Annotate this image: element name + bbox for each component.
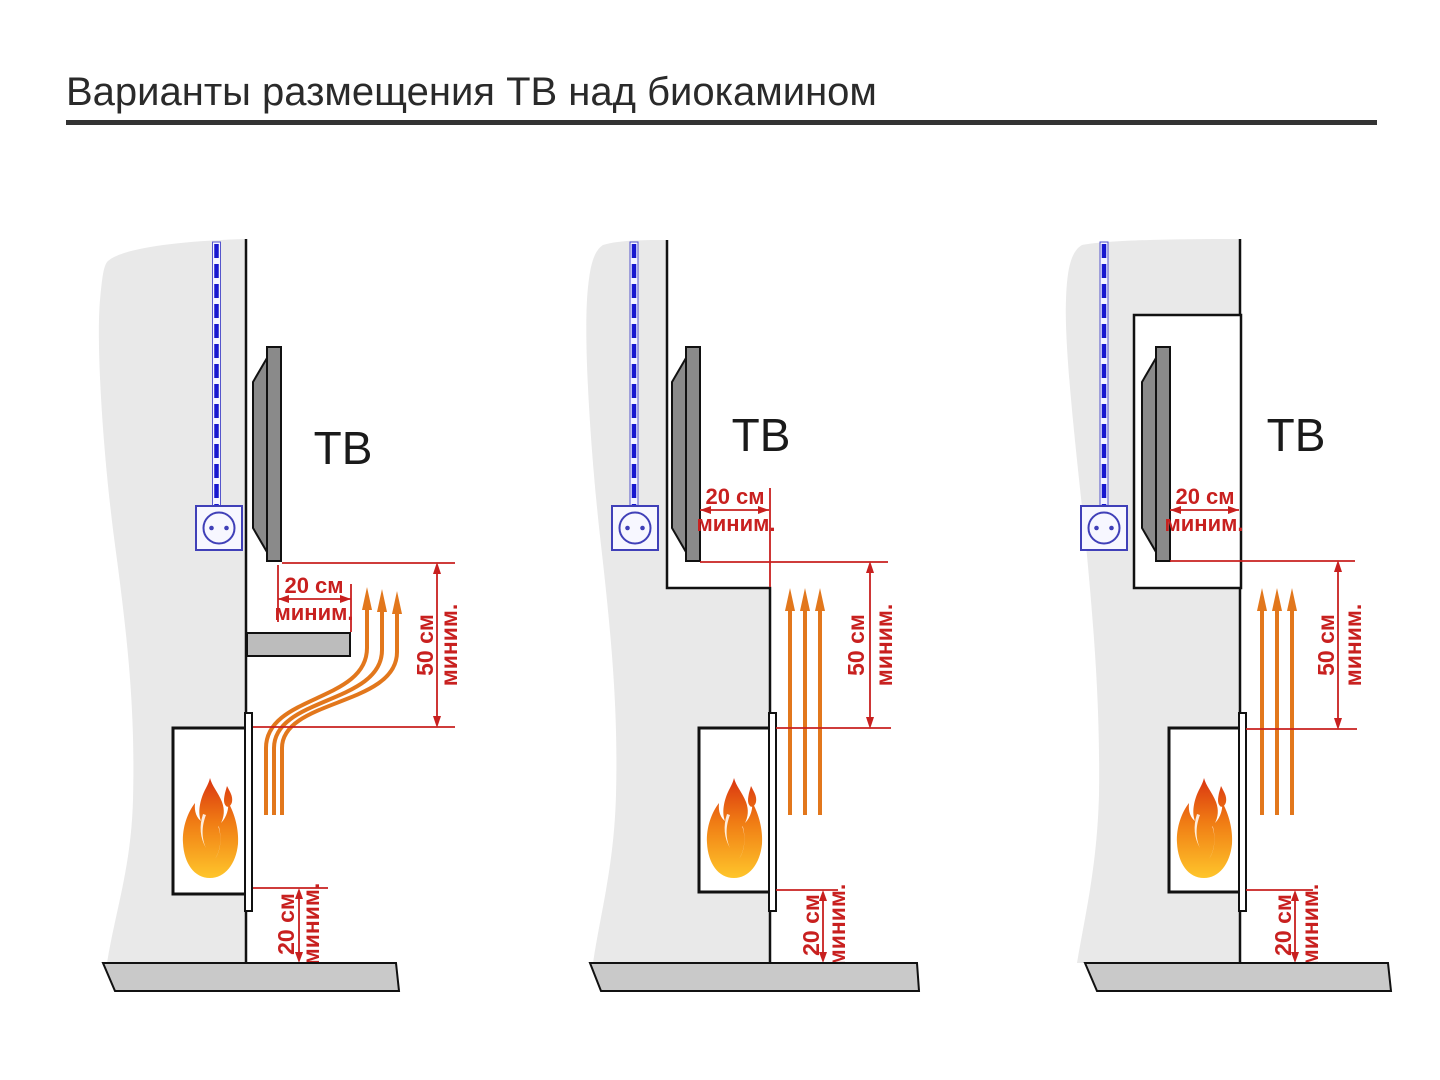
fireplace — [699, 713, 776, 911]
dim-20cm-floor-min: миним. — [1297, 884, 1323, 967]
fireplace-glass — [245, 713, 252, 911]
diagram-3: ТВ 20 см миним. — [1066, 239, 1391, 991]
diagram-canvas: ТВ 50 см миним. — [0, 0, 1440, 1080]
dim-50cm-min: миним. — [871, 604, 897, 687]
diagram-1: ТВ 50 см миним. — [99, 239, 462, 991]
tv-label: ТВ — [314, 422, 373, 474]
dim-20cm-floor-value: 20 см — [1270, 894, 1296, 956]
tv-label: ТВ — [732, 409, 791, 461]
dim-20cm-floor-min: миним. — [298, 883, 324, 966]
dimension-20cm-floor: 20 см миним. — [776, 884, 850, 967]
power-outlet — [1081, 506, 1127, 550]
floor — [103, 963, 399, 991]
dimension-20cm-side: 20 см миним. — [697, 484, 776, 587]
dim-20cm-floor-value: 20 см — [798, 894, 824, 956]
dimension-20cm-side: 20 см миним. — [275, 565, 354, 632]
dim-20cm-floor-min: миним. — [824, 884, 850, 967]
dim-20cm-side-value: 20 см — [284, 573, 343, 598]
dim-20cm-side-value: 20 см — [1175, 484, 1234, 509]
dimension-20cm-floor: 20 см миним. — [1246, 884, 1323, 967]
dim-20cm-floor-value: 20 см — [273, 893, 299, 955]
tv-label: ТВ — [1267, 409, 1326, 461]
dimension-20cm-side: 20 см миним. — [1165, 484, 1244, 536]
dim-20cm-side-min: миним. — [697, 511, 776, 536]
mantel-shelf — [247, 633, 350, 656]
heat-arrows — [1257, 588, 1297, 815]
dim-50cm-min: миним. — [436, 604, 462, 687]
tv-side-profile — [253, 347, 281, 561]
fireplace — [173, 713, 252, 911]
floor — [590, 963, 919, 991]
dim-20cm-side-min: миним. — [1165, 511, 1244, 536]
dim-50cm-value: 50 см — [843, 614, 869, 676]
power-outlet — [196, 506, 242, 550]
dim-50cm-value: 50 см — [412, 614, 438, 676]
dim-50cm-min: миним. — [1340, 604, 1366, 687]
dim-50cm-value: 50 см — [1313, 614, 1339, 676]
dim-20cm-side-min: миним. — [275, 600, 354, 625]
power-outlet — [612, 506, 658, 550]
dim-20cm-side-value: 20 см — [705, 484, 764, 509]
fireplace-glass — [1239, 713, 1246, 911]
heat-arrows — [785, 588, 825, 815]
fireplace-glass — [769, 713, 776, 911]
page: Варианты размещения ТВ над биокамином — [0, 0, 1440, 1080]
floor — [1085, 963, 1391, 991]
diagram-2: ТВ 20 см миним. — [586, 240, 919, 991]
dimension-20cm-floor: 20 см миним. — [253, 883, 328, 966]
fireplace — [1169, 713, 1246, 911]
